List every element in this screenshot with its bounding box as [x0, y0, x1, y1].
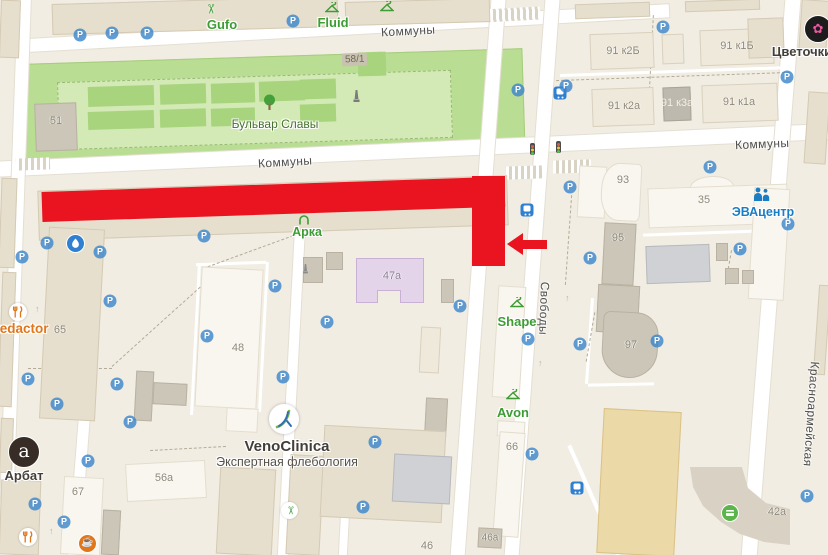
- building[interactable]: [725, 268, 739, 284]
- hedge: [88, 110, 155, 130]
- traffic-light-icon: [530, 143, 535, 155]
- poi-label-gufo[interactable]: Gufo: [207, 17, 237, 32]
- building-label-58-1[interactable]: 58/1: [342, 53, 368, 67]
- people-icon[interactable]: [753, 187, 770, 207]
- building-label-91k1b[interactable]: 91 к1Б: [720, 40, 753, 52]
- hedge: [211, 82, 256, 103]
- parking-icon[interactable]: P: [94, 246, 107, 259]
- one-way-arrow: ↑: [35, 304, 40, 314]
- map-canvas[interactable]: ↑ ↑ ↑ ↑ P P P P P P P P P P P P P P P P …: [0, 0, 828, 555]
- building-label-35[interactable]: 35: [698, 194, 710, 206]
- building-label-56a[interactable]: 56а: [155, 472, 173, 484]
- parking-icon[interactable]: P: [104, 295, 117, 308]
- building-label-46a[interactable]: 46а: [482, 533, 499, 544]
- crosswalk: [506, 165, 542, 179]
- one-way-arrow: ↑: [49, 526, 54, 536]
- parking-icon[interactable]: P: [198, 230, 211, 243]
- hanger-icon[interactable]: [510, 297, 524, 315]
- parking-icon[interactable]: P: [357, 501, 370, 514]
- building[interactable]: [216, 467, 276, 555]
- building-label-91k2a[interactable]: 91 к2а: [608, 100, 640, 112]
- poi-label-avon[interactable]: Avon: [497, 405, 529, 420]
- building-label-47a[interactable]: 47а: [383, 270, 401, 282]
- parking-icon[interactable]: P: [522, 333, 535, 346]
- crosswalk: [16, 157, 50, 170]
- park-inner-lawn: [57, 70, 453, 150]
- building-93[interactable]: [600, 162, 643, 222]
- footpath-dashed: [150, 446, 226, 451]
- building-47a-wing[interactable]: [400, 290, 424, 303]
- hedge: [300, 78, 337, 99]
- building-label-93[interactable]: 93: [617, 174, 629, 186]
- building[interactable]: [645, 244, 710, 284]
- parking-icon[interactable]: P: [41, 237, 54, 250]
- parking-icon[interactable]: P: [657, 21, 670, 34]
- restaurant-icon[interactable]: [19, 528, 37, 546]
- building[interactable]: [345, 0, 491, 26]
- parking-icon[interactable]: P: [574, 338, 587, 351]
- parking-icon[interactable]: P: [782, 218, 795, 231]
- parking-icon[interactable]: P: [781, 71, 794, 84]
- poi-label-venoclinica-sub: Экспертная флебология: [216, 455, 358, 469]
- building-label-65[interactable]: 65: [54, 324, 66, 336]
- poi-label-tsvetochki[interactable]: Цветочки: [772, 44, 828, 59]
- parking-icon[interactable]: P: [584, 252, 597, 265]
- building[interactable]: [716, 243, 728, 261]
- parking-icon[interactable]: P: [277, 371, 290, 384]
- building[interactable]: [441, 279, 454, 303]
- tree-icon: [262, 94, 277, 116]
- venoclinica-logo-icon[interactable]: [269, 404, 299, 434]
- parking-icon[interactable]: P: [141, 27, 154, 40]
- parking-icon[interactable]: P: [369, 436, 382, 449]
- building[interactable]: [134, 371, 155, 422]
- building-label-66[interactable]: 66: [506, 441, 518, 453]
- hanger-icon[interactable]: [380, 1, 394, 19]
- building-label-91k3a[interactable]: 91 к3а: [661, 97, 693, 109]
- parking-icon[interactable]: P: [16, 251, 29, 264]
- parking-icon[interactable]: P: [124, 416, 137, 429]
- poi-label-eva[interactable]: ЭВАцентр: [732, 205, 794, 219]
- parking-icon[interactable]: P: [58, 516, 71, 529]
- building[interactable]: [685, 0, 760, 12]
- parking-icon[interactable]: P: [651, 335, 664, 348]
- building-label-97[interactable]: 97: [625, 339, 637, 351]
- street-label-kommuny-right: Коммуны: [735, 136, 790, 152]
- parking-icon[interactable]: P: [704, 161, 717, 174]
- poi-label-arka[interactable]: Арка: [292, 225, 322, 239]
- building[interactable]: [742, 270, 754, 284]
- building[interactable]: [0, 0, 21, 58]
- hedge: [88, 85, 155, 107]
- parking-icon[interactable]: P: [29, 498, 42, 511]
- poi-label-shape[interactable]: Shape: [497, 314, 536, 329]
- street-label-krasnoarmeyskaya: Красноармейская: [801, 361, 822, 467]
- street-label-kommuny-top: Коммуны: [381, 23, 436, 40]
- poi-label-venoclinica[interactable]: VenoClinica: [244, 438, 329, 455]
- one-way-arrow: ↑: [565, 293, 570, 303]
- building[interactable]: [152, 382, 187, 406]
- building-label-95[interactable]: 95: [612, 232, 624, 244]
- street-label-svobody: Свободы: [536, 282, 552, 336]
- hedge: [160, 83, 207, 104]
- parking-icon[interactable]: P: [560, 80, 573, 93]
- building-label-48[interactable]: 48: [232, 342, 244, 354]
- shop-card-icon[interactable]: [721, 504, 739, 522]
- one-way-arrow: ↑: [538, 358, 543, 368]
- monument-icon: [302, 262, 309, 280]
- red-arrow-shaft: [522, 240, 547, 249]
- scissors-icon[interactable]: ✂: [281, 502, 298, 519]
- building[interactable]: [225, 407, 258, 433]
- gas-flame-icon[interactable]: [66, 234, 85, 253]
- poi-label-fluid[interactable]: Fluid: [317, 15, 348, 30]
- parking-icon[interactable]: P: [106, 27, 119, 40]
- building[interactable]: [392, 454, 452, 505]
- building[interactable]: [575, 2, 650, 20]
- building-47a-wing[interactable]: [356, 290, 378, 303]
- parking-icon[interactable]: P: [287, 15, 300, 28]
- coffee-icon[interactable]: ☕: [78, 534, 97, 553]
- poi-label-redactor[interactable]: Redactor: [0, 321, 49, 336]
- street-label-kommuny-mid: Коммуны: [258, 153, 313, 170]
- red-route-overlay-column: [472, 176, 505, 266]
- monument-icon: [352, 90, 361, 109]
- parking-icon[interactable]: P: [74, 29, 87, 42]
- tsvetochki-logo-icon[interactable]: ✿: [804, 15, 828, 43]
- building[interactable]: [326, 252, 343, 270]
- parking-icon[interactable]: P: [801, 490, 814, 503]
- building[interactable]: [101, 510, 121, 555]
- parking-icon[interactable]: P: [526, 448, 539, 461]
- building-label-67[interactable]: 67: [72, 486, 84, 498]
- restaurant-icon[interactable]: [9, 303, 27, 321]
- building-label-42a[interactable]: 42а: [768, 506, 786, 518]
- parking-icon[interactable]: P: [454, 300, 467, 313]
- parking-icon[interactable]: P: [512, 84, 525, 97]
- building[interactable]: [804, 91, 828, 164]
- red-arrow-head: [507, 233, 523, 255]
- building-label-46[interactable]: 46: [421, 540, 433, 552]
- building-label-51[interactable]: 51: [50, 115, 62, 127]
- parking-icon[interactable]: P: [111, 378, 124, 391]
- scissors-icon[interactable]: ✂: [202, 4, 218, 15]
- building-42a[interactable]: [686, 462, 792, 547]
- building-label-91k2b[interactable]: 91 к2Б: [606, 45, 639, 57]
- hedge: [160, 108, 207, 127]
- parking-icon[interactable]: P: [321, 316, 334, 329]
- park-label: Бульвар Славы: [232, 117, 319, 131]
- bus-stop-icon[interactable]: [571, 482, 584, 495]
- parking-icon[interactable]: P: [82, 455, 95, 468]
- bus-stop-icon[interactable]: [521, 204, 534, 217]
- building[interactable]: [661, 34, 684, 65]
- building[interactable]: [419, 327, 441, 374]
- building-large[interactable]: [596, 408, 681, 555]
- traffic-light-icon: [556, 141, 561, 153]
- footpath-dashed: [565, 195, 572, 285]
- poi-label-arbat[interactable]: Арбат: [5, 468, 44, 483]
- building-label-91k1a[interactable]: 91 к1а: [723, 96, 755, 108]
- parking-icon[interactable]: P: [734, 243, 747, 256]
- parking-icon[interactable]: P: [22, 373, 35, 386]
- courtyard-path: [588, 382, 654, 386]
- parking-icon[interactable]: P: [269, 280, 282, 293]
- building-51[interactable]: [34, 102, 78, 151]
- parking-icon[interactable]: P: [51, 398, 64, 411]
- parking-icon[interactable]: P: [201, 330, 214, 343]
- arbat-logo-icon[interactable]: a: [8, 436, 40, 468]
- parking-icon[interactable]: P: [564, 181, 577, 194]
